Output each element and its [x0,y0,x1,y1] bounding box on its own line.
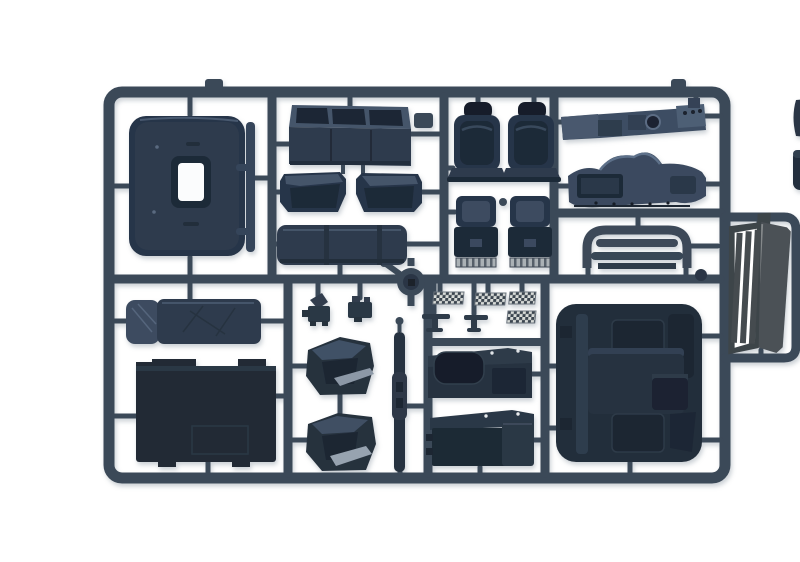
part-door-card-right [306,413,376,471]
part-overhead-shelf [289,105,411,166]
part-bench-cushion [277,225,407,265]
sidewall-window-recess [434,352,484,384]
part-pillar-trim-strip [392,317,407,472]
part-engine-cowl-left [280,172,346,212]
sprue-photo: Photograph of a dark blue-grey injection… [40,16,800,546]
window-cutout [178,163,204,201]
part-seat-base-left [454,196,498,267]
part-bunk-mattress [126,299,261,344]
part-seat-base-right [508,196,552,267]
sprue-illustration: Plastic model kit sprue — truck cab inte… [40,16,800,546]
part-cab-back-panel [129,116,255,256]
part-engine-tunnel [556,304,702,462]
part-radiator-grille [722,210,791,357]
part-engine-cowl-right [356,173,422,212]
part-sleeper-sidewall-window [428,348,532,398]
part-sleeper-sidewall-plain [426,410,534,466]
part-floor-panel [136,359,276,467]
